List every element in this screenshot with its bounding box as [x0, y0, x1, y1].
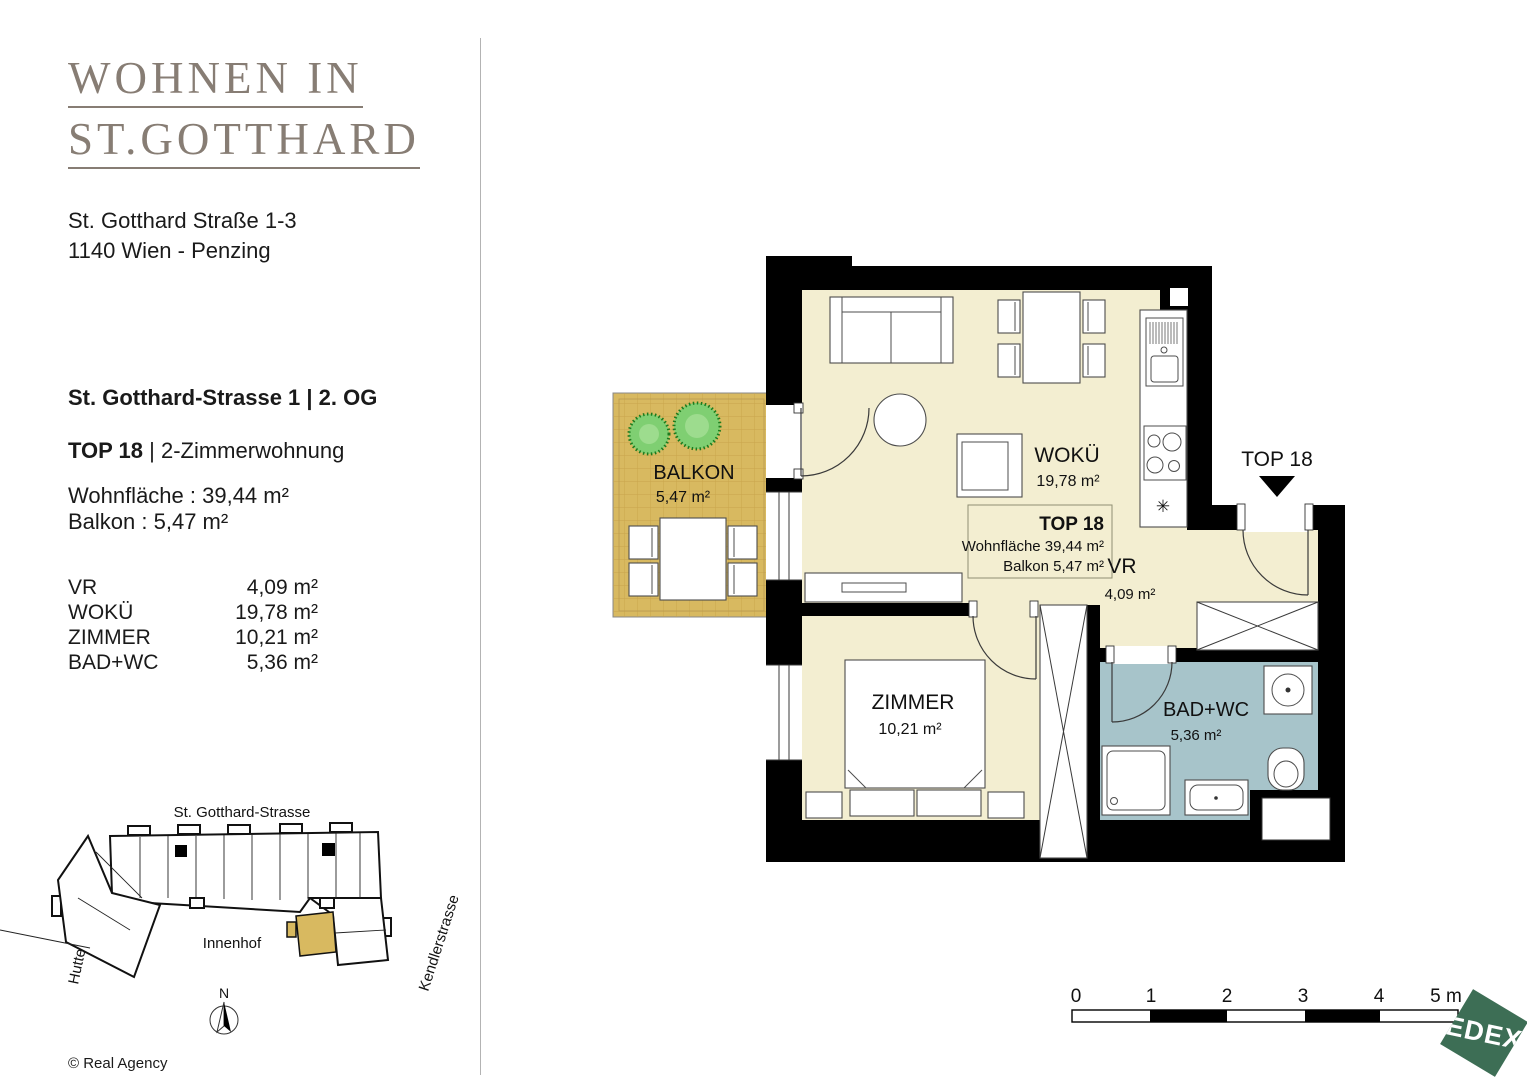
- pillow: [850, 790, 914, 816]
- woku-label: WOKÜ: [1034, 444, 1099, 467]
- svg-text:2: 2: [1222, 986, 1233, 1007]
- svg-text:4: 4: [1374, 986, 1385, 1007]
- zimmer-area: 10,21 m²: [878, 721, 942, 738]
- vanity-sink-icon: [1185, 780, 1248, 815]
- highlighted-unit: [287, 912, 336, 956]
- balcony: BALKON 5,47 m²: [613, 393, 770, 617]
- street-top-label: St. Gotthard-Strasse: [174, 804, 311, 821]
- page: { "brand": {"title_line1": "WOHNEN IN", …: [0, 0, 1527, 1080]
- infobox-balcony: Balkon 5,47 m²: [1003, 558, 1104, 575]
- woku-area: 19,78 m²: [1036, 473, 1100, 490]
- balcony-table-set: [629, 518, 757, 600]
- svg-text:0: 0: [1071, 986, 1082, 1007]
- window-zimmer: [766, 665, 802, 760]
- entrance-arrow-icon: [1259, 476, 1295, 497]
- window-woku: [766, 492, 802, 580]
- washing-machine-icon: [1264, 666, 1312, 714]
- svg-text:1: 1: [1146, 986, 1157, 1007]
- svg-text:3: 3: [1298, 986, 1309, 1007]
- toilet-icon: [1268, 748, 1304, 790]
- nightstand: [806, 792, 842, 818]
- shower-icon: [1102, 746, 1170, 815]
- north-arrow-icon: N: [210, 985, 238, 1034]
- sofa: [830, 297, 953, 363]
- infobox-living: Wohnfläche 39,44 m²: [962, 538, 1104, 555]
- building-outline: [0, 823, 391, 977]
- zimmer-label: ZIMMER: [872, 691, 955, 714]
- north-label: N: [219, 985, 229, 1001]
- vr-area: 4,09 m²: [1105, 586, 1156, 603]
- bad-label: BAD+WC: [1163, 699, 1249, 721]
- pillow: [917, 790, 981, 816]
- scale-bar: 0 1 2 3 4 5 m: [1071, 986, 1462, 1022]
- kitchen-counter: ✳: [1140, 310, 1187, 527]
- boiler-symbol: ✳: [1156, 497, 1170, 516]
- infobox-title: TOP 18: [1039, 514, 1104, 535]
- courtyard-label: Innenhof: [203, 935, 262, 952]
- niche: [1262, 798, 1330, 840]
- svg-text:5 m: 5 m: [1430, 986, 1462, 1007]
- entrance-label: TOP 18: [1241, 448, 1313, 471]
- side-table: [874, 394, 926, 446]
- sideboard: [805, 573, 962, 602]
- nightstand: [988, 792, 1024, 818]
- armchair: [957, 434, 1022, 497]
- balcony-area: 5,47 m²: [656, 489, 711, 506]
- street-right-label: Kendlerstrasse: [416, 893, 463, 993]
- drawing-layer: BALKON 5,47 m²: [0, 0, 1527, 1080]
- bad-area: 5,36 m²: [1171, 727, 1222, 744]
- site-plan: St. Gotthard-Strasse Huttengasse Kendler…: [0, 804, 463, 1034]
- balcony-label: BALKON: [653, 462, 734, 484]
- vr-label: VR: [1107, 555, 1136, 578]
